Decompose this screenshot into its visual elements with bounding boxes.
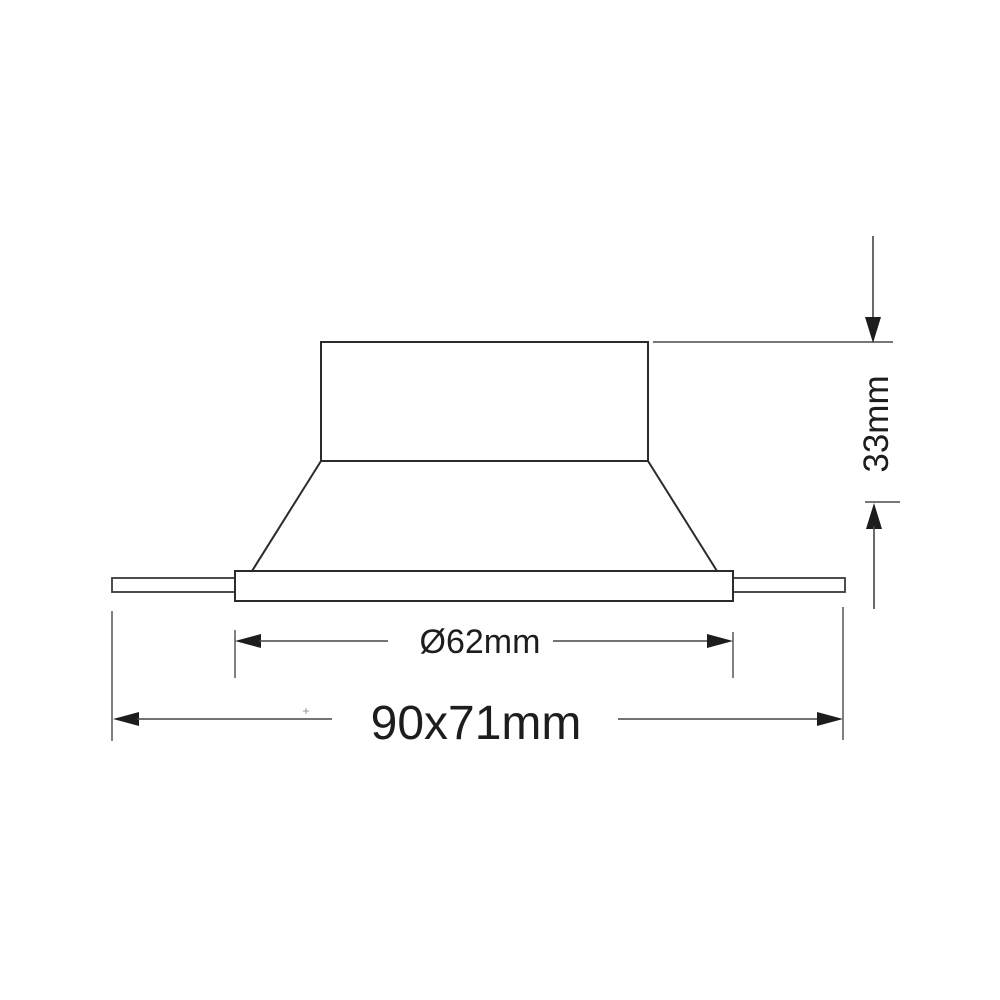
cutout-dimension: Ø62mm bbox=[235, 623, 733, 678]
depth-dimension: 33mm bbox=[653, 236, 900, 609]
spring-tab-right bbox=[733, 578, 845, 592]
fixture-flange bbox=[235, 571, 733, 601]
overall-dimension-label: 90x71mm bbox=[371, 697, 582, 750]
arrow-up-icon bbox=[866, 503, 882, 529]
fixture-body bbox=[321, 342, 648, 461]
depth-dimension-label: 33mm bbox=[857, 375, 896, 472]
cutout-dimension-label: Ø62mm bbox=[420, 623, 541, 661]
arrow-down-icon bbox=[865, 317, 881, 343]
fixture-profile bbox=[112, 342, 845, 601]
stray-cross-mark bbox=[303, 708, 309, 714]
spring-tab-left bbox=[112, 578, 235, 592]
dimension-drawing-svg: 33mm Ø62mm 90x71mm bbox=[0, 0, 1000, 1000]
fixture-cone-right-edge bbox=[648, 461, 717, 571]
arrow-left-icon bbox=[113, 712, 139, 726]
drawing-canvas: 33mm Ø62mm 90x71mm bbox=[0, 0, 1000, 1000]
fixture-cone-left-edge bbox=[252, 461, 321, 571]
arrow-left-icon bbox=[235, 634, 261, 648]
arrow-right-icon bbox=[707, 634, 733, 648]
arrow-right-icon bbox=[817, 712, 843, 726]
